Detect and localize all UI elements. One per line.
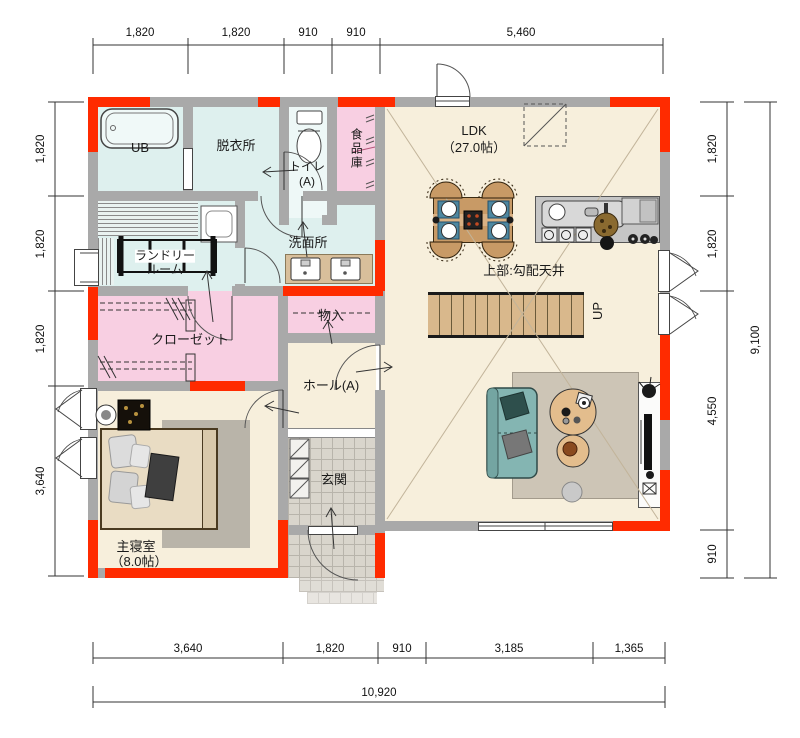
label-closet: クローゼット (151, 333, 229, 347)
dining-table (433, 197, 513, 243)
dim-top-0: 1,820 (126, 27, 155, 39)
shear-wall (375, 240, 385, 291)
label-storage: 物入 (318, 309, 344, 323)
dim-bottom-1: 1,820 (316, 643, 345, 655)
floor-plan: UB 脱衣所 トイレ (A) 食品庫 LDK （27.0帖） 洗面所 ランドリー… (0, 0, 800, 738)
dim-top-1: 1,820 (222, 27, 251, 39)
shear-wall (278, 520, 288, 578)
label-ldk-size: （27.0帖） (442, 141, 506, 155)
label-laundry-2: ルーム (147, 264, 183, 277)
shear-wall (88, 97, 98, 152)
living-rug (512, 372, 639, 499)
shear-wall (88, 287, 98, 340)
window-ldk-south (478, 522, 613, 531)
wall-int (303, 191, 380, 201)
dim-top-3: 910 (346, 27, 365, 39)
wall-int (279, 102, 289, 225)
vanity-counter (285, 254, 373, 284)
porch-step-1 (299, 578, 384, 592)
tv-board (638, 382, 661, 508)
window-right-2 (658, 293, 670, 335)
shear-wall (660, 97, 670, 152)
porch-step-2 (307, 592, 377, 604)
wall-int (288, 333, 376, 343)
dim-bottom-0: 3,640 (174, 643, 203, 655)
label-ceiling-note: 上部:勾配天井 (483, 264, 565, 278)
door-ldk-north (435, 96, 470, 107)
shear-wall (88, 520, 98, 578)
shear-wall (258, 97, 280, 107)
label-bedroom: 主寝室 (116, 540, 155, 554)
label-bedroom-size: （8.0帖） (110, 555, 167, 569)
wall-ldk-west (375, 390, 385, 521)
dim-top-4: 5,460 (507, 27, 536, 39)
label-laundry-1: ランドリー (135, 250, 195, 263)
shear-wall (105, 568, 280, 578)
shear-wall (660, 334, 670, 420)
dim-right-total: 9,100 (750, 326, 762, 355)
porch (288, 534, 385, 578)
dim-right-1: 1,820 (707, 230, 719, 259)
dim-left-0: 1,820 (35, 135, 47, 164)
wall-int (93, 286, 188, 296)
kitchen-counter (535, 196, 660, 243)
dim-right-2: 4,550 (707, 397, 719, 426)
window-right-1 (658, 250, 670, 292)
door-ub (183, 148, 193, 190)
label-hall: ホール(A) (303, 379, 359, 393)
door-entrance (308, 526, 358, 535)
dim-right-0: 1,820 (707, 135, 719, 164)
label-pantry: 食品庫 (350, 128, 363, 170)
dim-bottom-3: 3,185 (495, 643, 524, 655)
laundry-drying-area (98, 200, 198, 236)
label-washroom: 洗面所 (288, 236, 327, 250)
bed (100, 428, 218, 530)
label-toilet-suffix: (A) (299, 176, 315, 189)
dim-left-2: 1,820 (35, 325, 47, 354)
laundry-blind (98, 238, 114, 285)
dim-bottom-total: 10,920 (361, 687, 396, 699)
genkan-step (288, 428, 376, 438)
dim-left-3: 3,640 (35, 467, 47, 496)
wall-int (93, 191, 258, 201)
dim-bottom-4: 1,365 (615, 643, 644, 655)
dim-left-1: 1,820 (35, 230, 47, 259)
shear-wall (660, 470, 670, 521)
dim-bottom-2: 910 (392, 643, 411, 655)
shear-wall (613, 521, 670, 531)
shear-wall (190, 381, 245, 391)
wall-int (288, 525, 308, 535)
stairs (428, 292, 584, 338)
wall-int (322, 215, 337, 225)
window-bedroom-1 (80, 388, 97, 430)
label-dressing: 脱衣所 (216, 139, 255, 153)
shear-wall (338, 97, 395, 107)
label-genkan: 玄関 (321, 473, 347, 487)
dim-top-2: 910 (298, 27, 317, 39)
shear-wall (375, 533, 385, 578)
window-bedroom-2 (80, 437, 97, 479)
bed-footboard (202, 430, 216, 528)
wall-ldk-west (375, 102, 385, 345)
label-ldk: LDK (461, 124, 486, 138)
shear-wall (283, 286, 383, 296)
label-stairs-up: UP (591, 302, 605, 320)
label-ub: UB (131, 141, 149, 155)
wall-int (279, 215, 289, 225)
wall-int (235, 201, 245, 248)
window-laundry-bay (74, 249, 99, 286)
dim-right-3: 910 (707, 544, 719, 563)
label-toilet: トイレ (289, 161, 325, 174)
wall-int (278, 291, 288, 386)
